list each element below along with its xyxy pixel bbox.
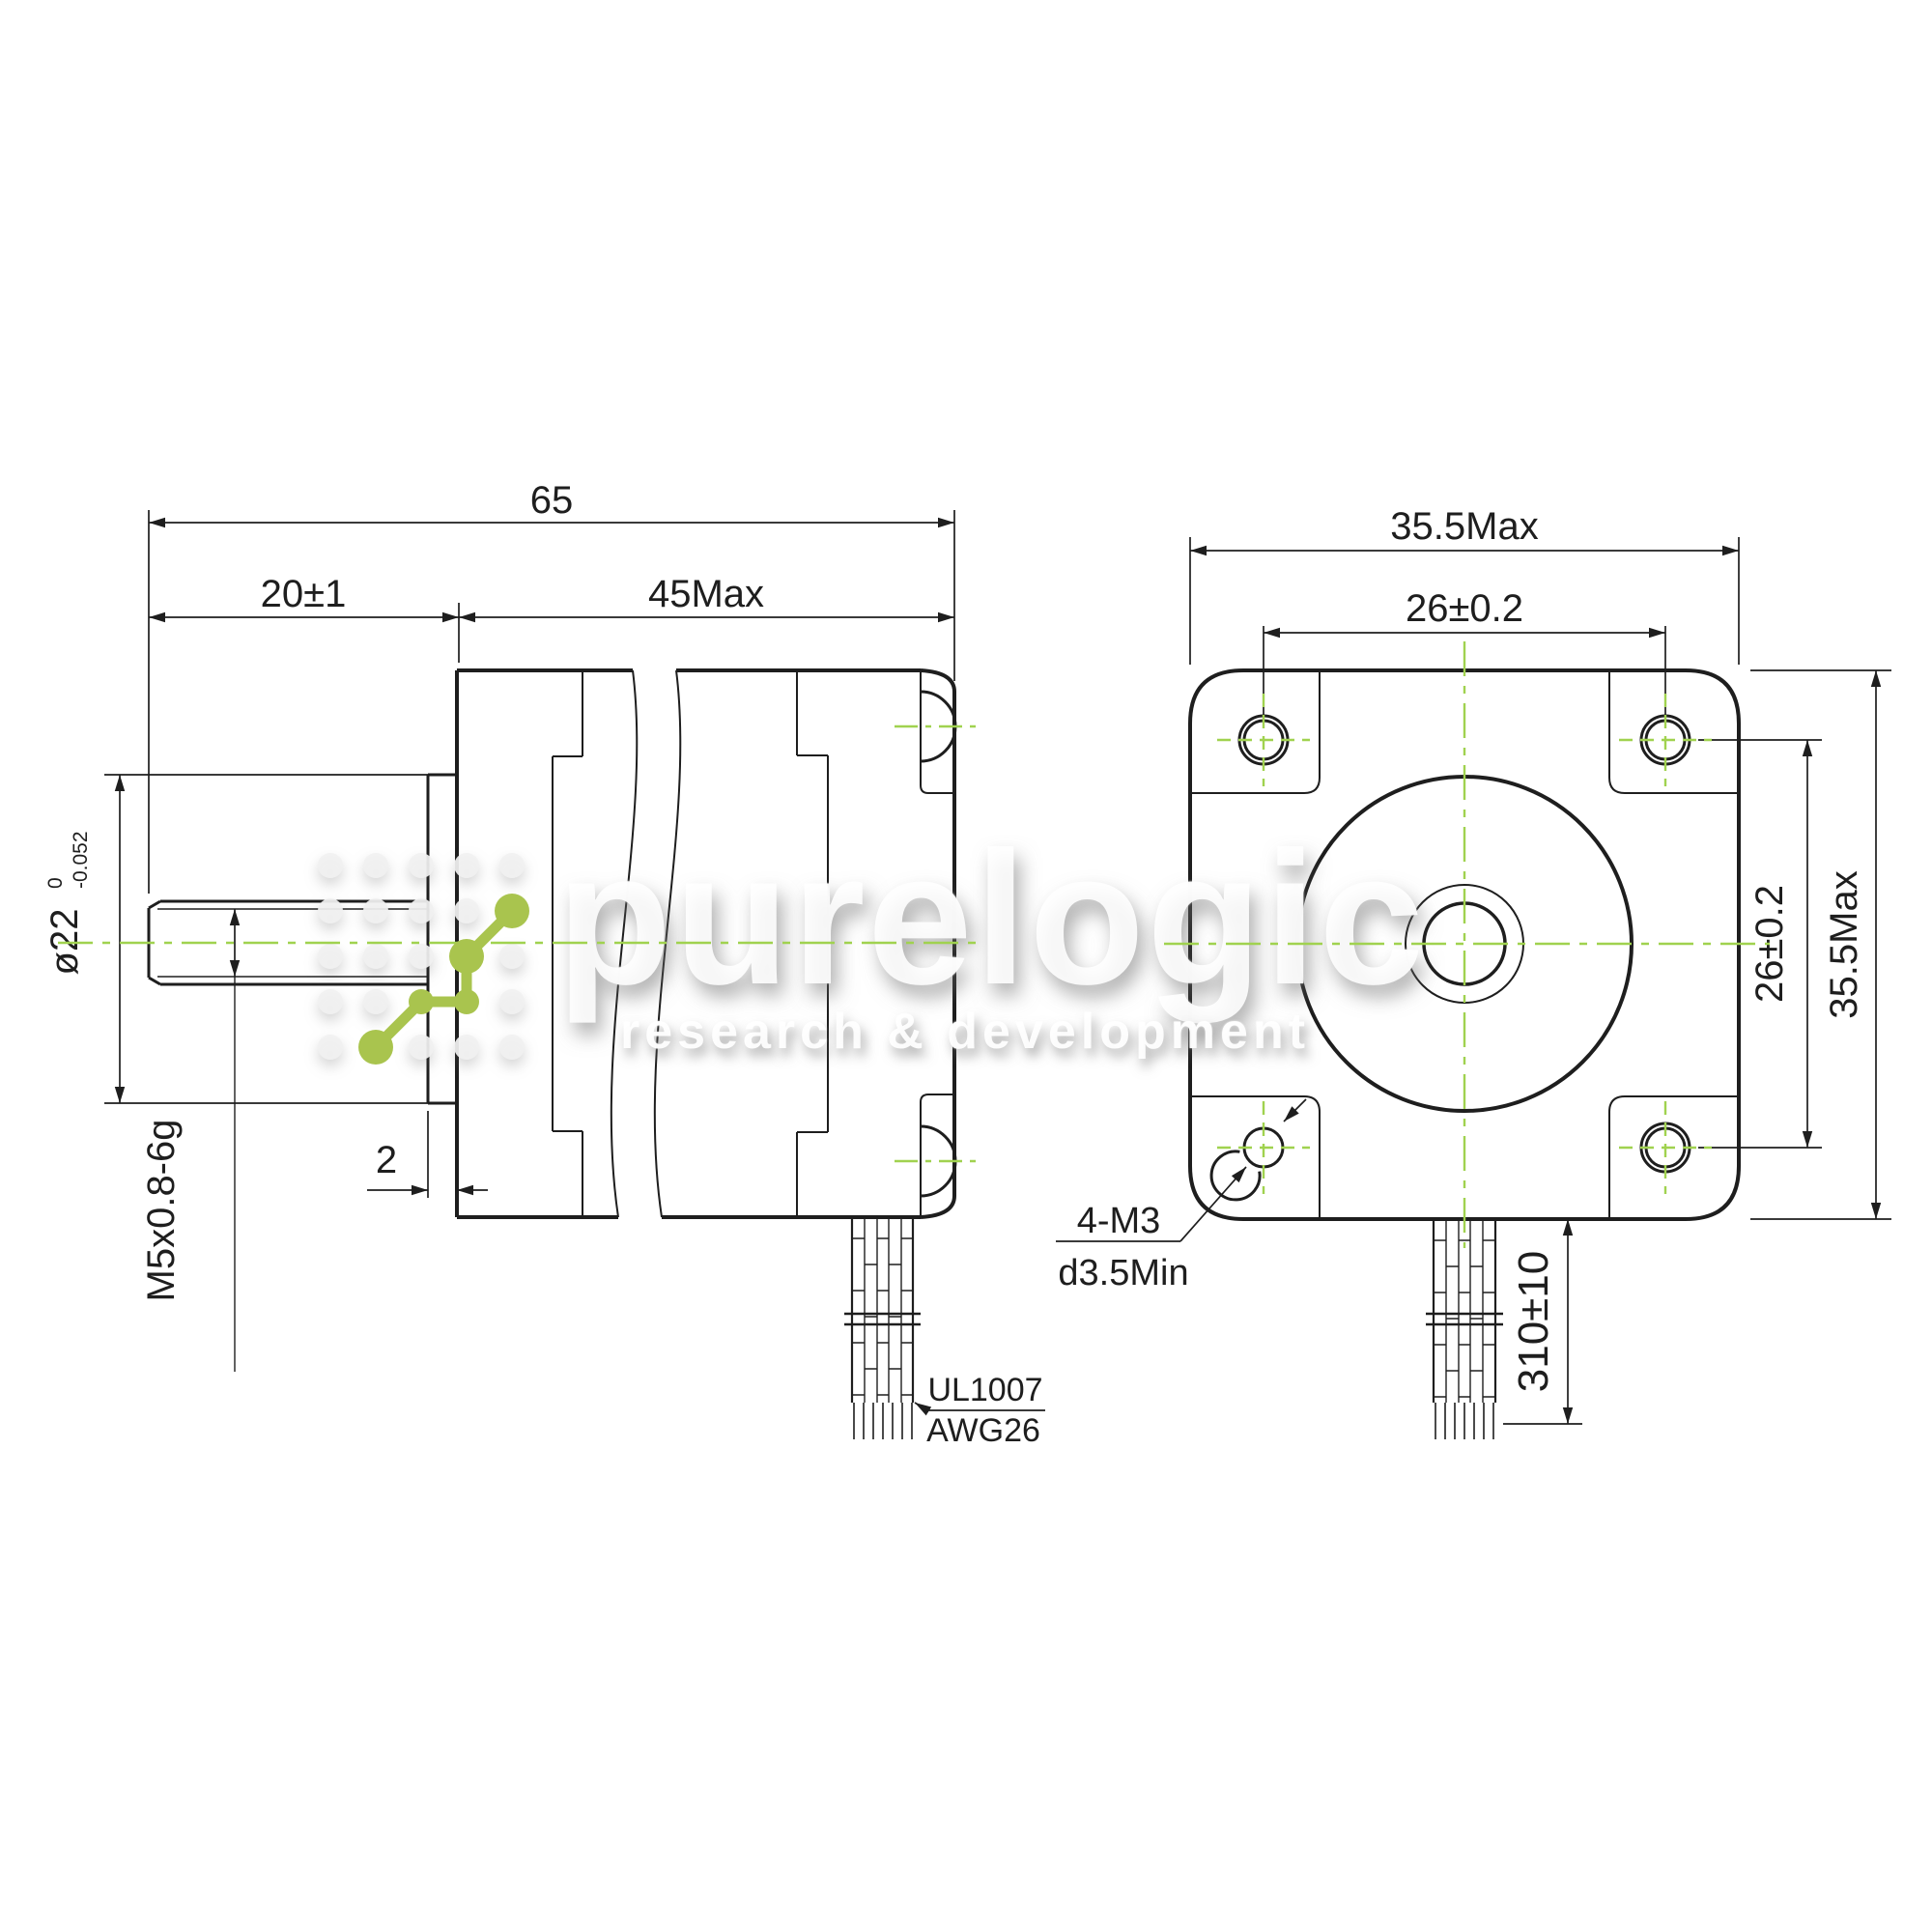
dim-body-width: 35.5Max bbox=[1390, 505, 1538, 548]
shaft-circle bbox=[1424, 903, 1505, 984]
svg-text:ø22: ø22 bbox=[43, 909, 86, 976]
dim-body-length: 45Max bbox=[648, 573, 764, 615]
wire-bundle-front bbox=[1426, 1219, 1503, 1439]
watermark-brand: purelogic bbox=[556, 810, 1426, 1027]
dim-thread-spec: M5x0.8-6g bbox=[140, 1120, 183, 1302]
svg-text:-0.052: -0.052 bbox=[70, 831, 92, 889]
dim-shaft-boss-diameter: ø22 0 -0.052 bbox=[43, 831, 92, 975]
label-wire-type: UL1007 bbox=[927, 1372, 1042, 1408]
motor-shaft bbox=[149, 901, 428, 984]
pilot-boss bbox=[428, 775, 457, 1103]
dim-pilot-thickness: 2 bbox=[376, 1139, 397, 1181]
dim-wire-length: 310±10 bbox=[1510, 1251, 1557, 1393]
label-holes-count: 4-M3 bbox=[1077, 1201, 1161, 1241]
dim-shaft-length: 20±1 bbox=[261, 573, 347, 615]
label-hole-depth: d3.5Min bbox=[1058, 1253, 1188, 1293]
wire-bundle-side bbox=[844, 1217, 921, 1439]
watermark-tagline: research & development bbox=[620, 1003, 1310, 1061]
drawing-canvas: 65 20±1 45Max 2 ø22 0 -0.052 M5x0.8-6g 3… bbox=[0, 0, 1932, 1932]
dim-total-length: 65 bbox=[530, 479, 574, 522]
svg-text:0: 0 bbox=[44, 877, 67, 889]
wire-clamp bbox=[844, 1314, 921, 1324]
dim-body-height: 35.5Max bbox=[1823, 870, 1865, 1018]
label-wire-gauge: AWG26 bbox=[926, 1412, 1040, 1449]
dim-hole-spacing-h: 26±0.2 bbox=[1406, 587, 1523, 630]
dim-hole-spacing-v: 26±0.2 bbox=[1748, 885, 1791, 1003]
